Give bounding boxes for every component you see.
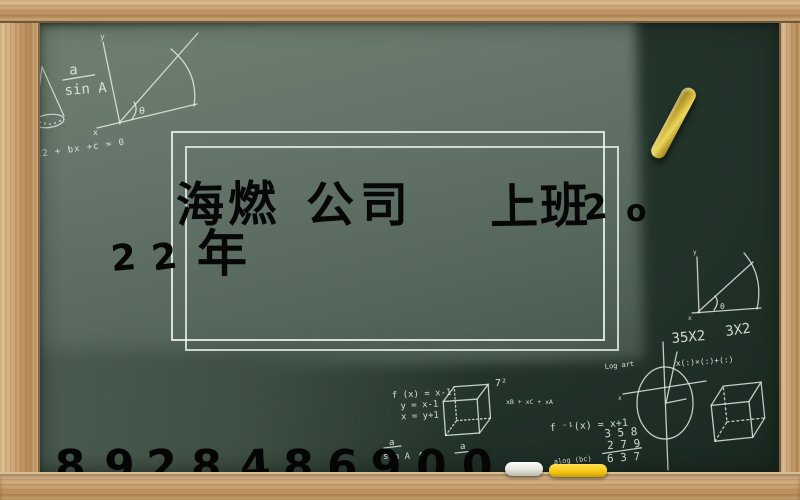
title-text-digit2b: 2 xyxy=(150,238,180,277)
axis1-angle-label: θ xyxy=(139,106,145,117)
small-expression: xB + xC + xA xyxy=(506,398,553,406)
fx-line1: f (x) = x-1 xyxy=(392,388,452,401)
axis2-y-label: y xyxy=(693,249,697,256)
fx-line3: x = y+1 xyxy=(401,411,439,423)
fraction-a-sinA: a sin A xyxy=(62,60,108,99)
fraction1-denominator: sin A xyxy=(64,80,108,99)
chalkboard-scene: a sin A y x θ ax2 + bx +c = 0 y x θ 35X2 xyxy=(0,0,800,500)
title-text-nian: 年 xyxy=(197,229,247,279)
wood-frame-top xyxy=(0,0,800,23)
white-chalk-stick-tray xyxy=(505,462,543,476)
axis1-y-label: y xyxy=(100,32,105,41)
sum-row3: 6 3 7 xyxy=(607,450,641,465)
mult-label-35x2: 35X2 xyxy=(671,328,706,347)
cube-sketch-right xyxy=(709,382,766,441)
fx-line2: y = x-1 xyxy=(400,400,438,412)
coordinate-axes-sketch-1: y x θ xyxy=(93,32,198,137)
matrix-expression: x(:)×(:)+(:) xyxy=(676,355,734,368)
seven-squared: 7² xyxy=(495,378,507,389)
title-text-hairan: 海燃 xyxy=(176,180,281,230)
fraction1-numerator: a xyxy=(69,62,79,79)
mult-label-3x2: 3X2 xyxy=(724,321,751,340)
coordinate-axes-sketch-2: y x θ xyxy=(688,249,761,322)
axis2-angle-label: θ xyxy=(720,302,725,311)
log-label: Log art xyxy=(604,360,634,371)
wood-frame-bottom xyxy=(0,472,800,500)
quadratic-formula: ax2 + bx +c = 0 xyxy=(29,138,126,161)
wood-frame-right xyxy=(779,0,800,500)
axis1-x-label: x xyxy=(93,128,98,137)
axis2-x-label: x xyxy=(688,315,692,322)
title-text-shangban: 上班 xyxy=(490,182,591,232)
yellow-chalk-stick-tray xyxy=(549,464,607,477)
title-text-o: o xyxy=(626,197,647,227)
wood-frame-left xyxy=(0,0,40,500)
circle-x-label: x xyxy=(618,395,622,402)
title-text-gongsi: 公司 xyxy=(306,181,414,229)
title-text-digit2a: 2 xyxy=(109,240,137,278)
title-text-digit2-row1: 2 xyxy=(581,190,609,227)
